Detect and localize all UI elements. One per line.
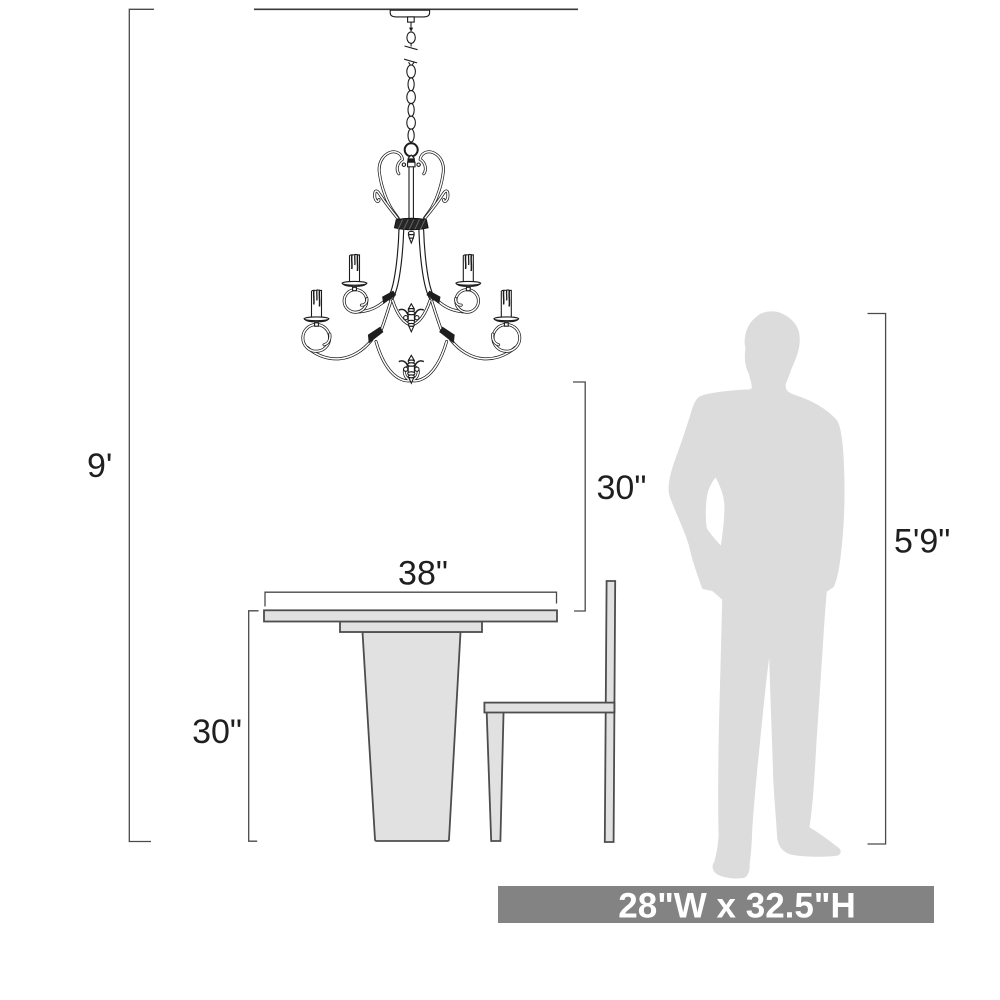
svg-text:5'9": 5'9" — [894, 523, 950, 561]
svg-text:38": 38" — [398, 555, 448, 593]
svg-text:9': 9' — [87, 447, 112, 485]
svg-text:30": 30" — [597, 469, 647, 507]
svg-text:30": 30" — [192, 713, 242, 751]
svg-text:28"W x 32.5"H: 28"W x 32.5"H — [618, 887, 855, 926]
